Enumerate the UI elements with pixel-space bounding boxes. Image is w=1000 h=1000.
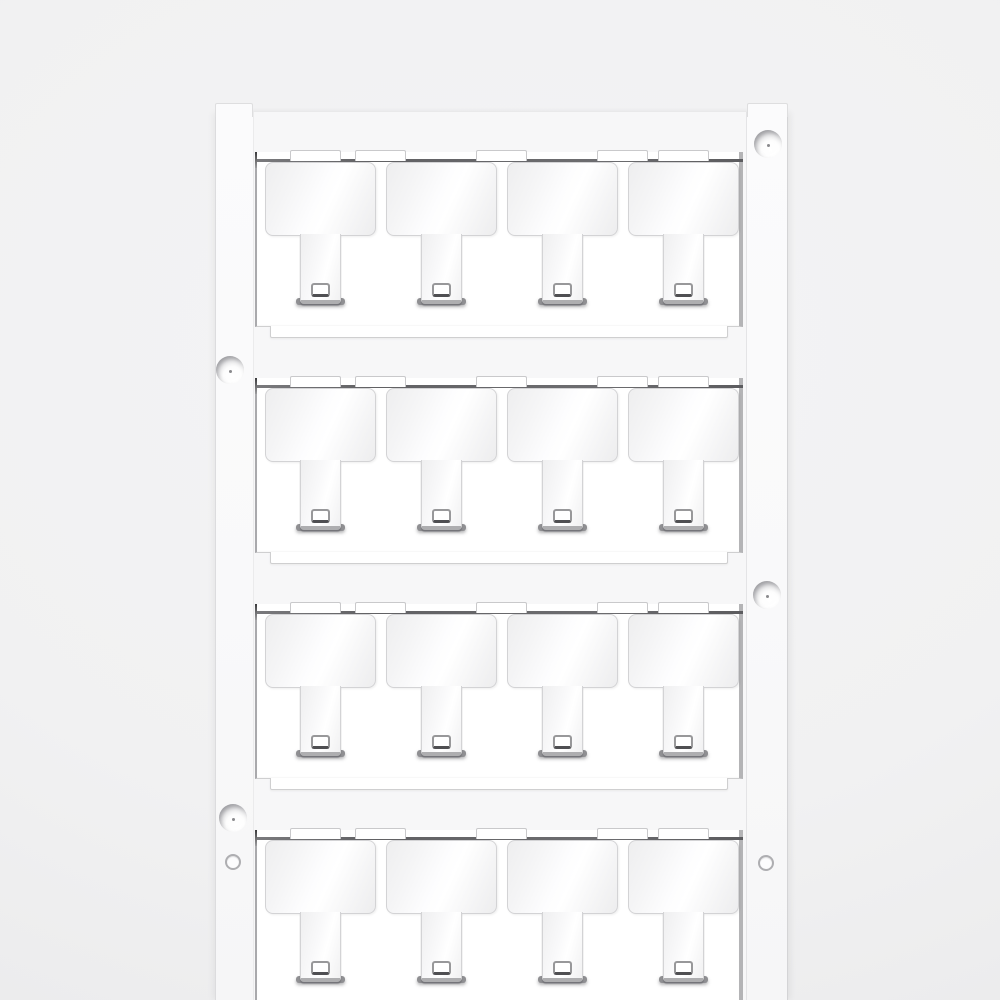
countersunk-mounting-hole xyxy=(216,356,244,384)
countersink-center-dot xyxy=(232,818,235,821)
holes-layer xyxy=(0,0,1000,1000)
product-photo xyxy=(0,0,1000,1000)
countersunk-mounting-hole xyxy=(753,581,781,609)
plain-mounting-hole xyxy=(758,855,774,871)
plain-mounting-hole xyxy=(225,854,241,870)
countersink-center-dot xyxy=(229,370,232,373)
countersunk-mounting-hole xyxy=(754,130,782,158)
countersunk-mounting-hole xyxy=(219,804,247,832)
countersink-center-dot xyxy=(766,595,769,598)
countersink-center-dot xyxy=(767,144,770,147)
